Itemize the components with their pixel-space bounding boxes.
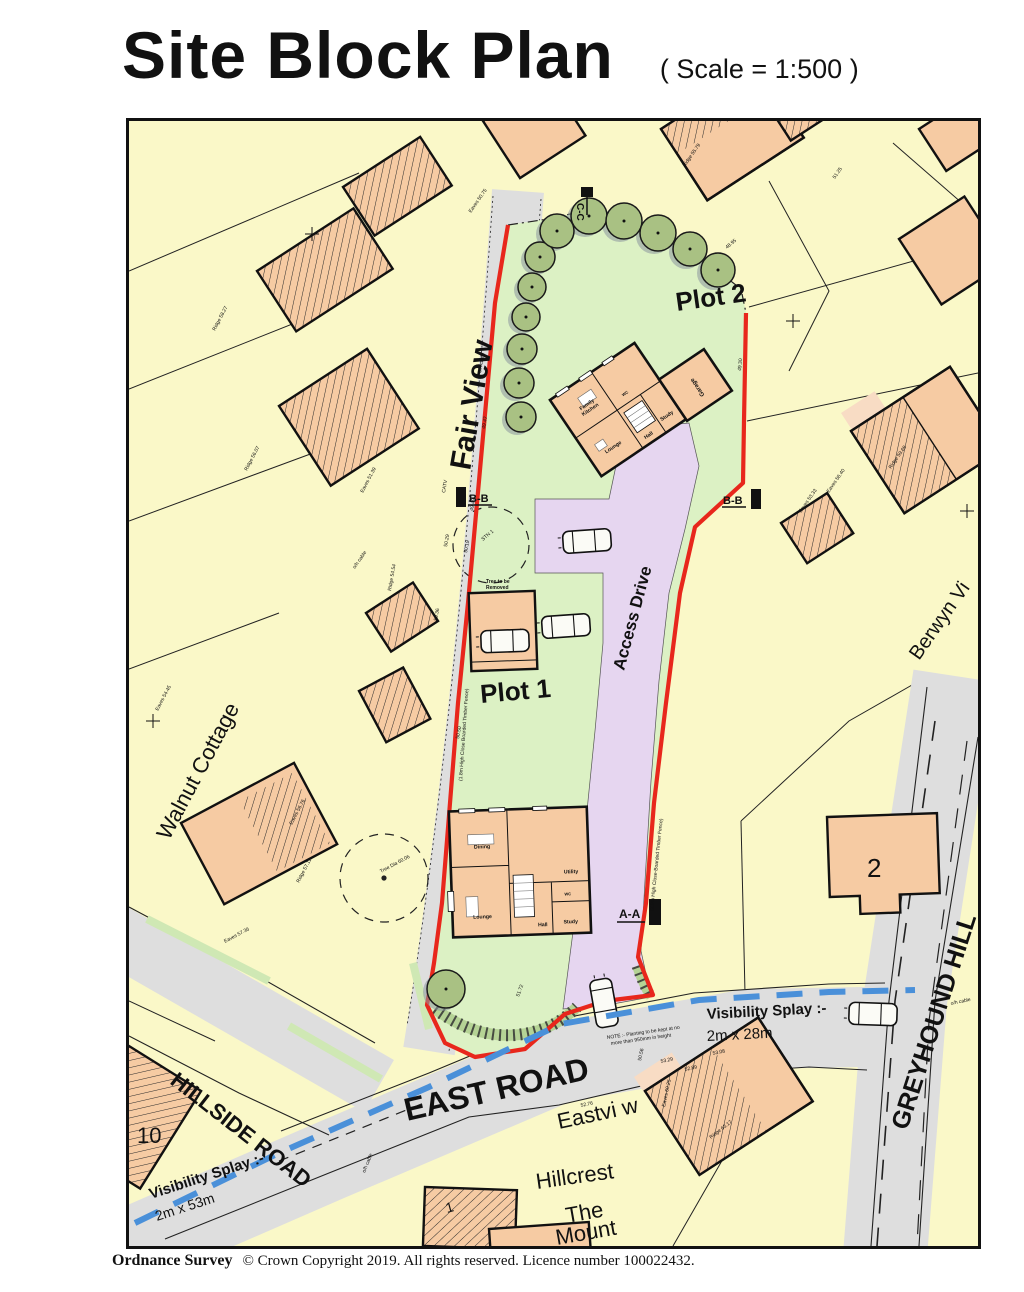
map-attribution: Ordnance Survey© Crown Copyright 2019. A… [112, 1252, 695, 1270]
page-title: Site Block Plan [122, 22, 614, 88]
attribution-text: © Crown Copyright 2019. All rights reser… [242, 1253, 694, 1269]
house-number-2: 2 [867, 853, 881, 883]
room-label: WC [564, 891, 571, 896]
site-plan-map: Garage Family Kitchen Lounge Hall Study … [126, 118, 981, 1249]
attribution-brand: Ordnance Survey [112, 1252, 232, 1269]
section-aa: A-A [619, 907, 641, 921]
car-icon [476, 629, 530, 653]
spot-label: 49.30 [737, 358, 744, 371]
car-icon [844, 1002, 898, 1026]
scale-note: ( Scale = 1:500 ) [660, 54, 859, 85]
plot1-label: Plot 1 [479, 673, 552, 709]
car-icon [536, 613, 590, 639]
room-label: Utility [564, 869, 579, 876]
room-label: Study [563, 919, 578, 926]
car-icon [557, 528, 611, 554]
site-plan-svg: Garage Family Kitchen Lounge Hall Study … [129, 121, 978, 1246]
room-label: Dining [474, 844, 490, 851]
section-bb-right: B-B [723, 495, 743, 507]
room-label: Lounge [473, 914, 492, 921]
tree-note-2: Removed [486, 585, 509, 591]
section-cc: C-C [574, 203, 585, 221]
page: Site Block Plan ( Scale = 1:500 ) [0, 0, 1024, 1292]
splay-east-dim: 2m x 28m [706, 1025, 773, 1045]
house-number-10: 10 [137, 1123, 161, 1148]
title-row: Site Block Plan ( Scale = 1:500 ) [122, 22, 859, 88]
plot1-house: Dining Lounge Hall Study Utility WC [445, 805, 591, 938]
room-label: Hall [538, 922, 548, 928]
